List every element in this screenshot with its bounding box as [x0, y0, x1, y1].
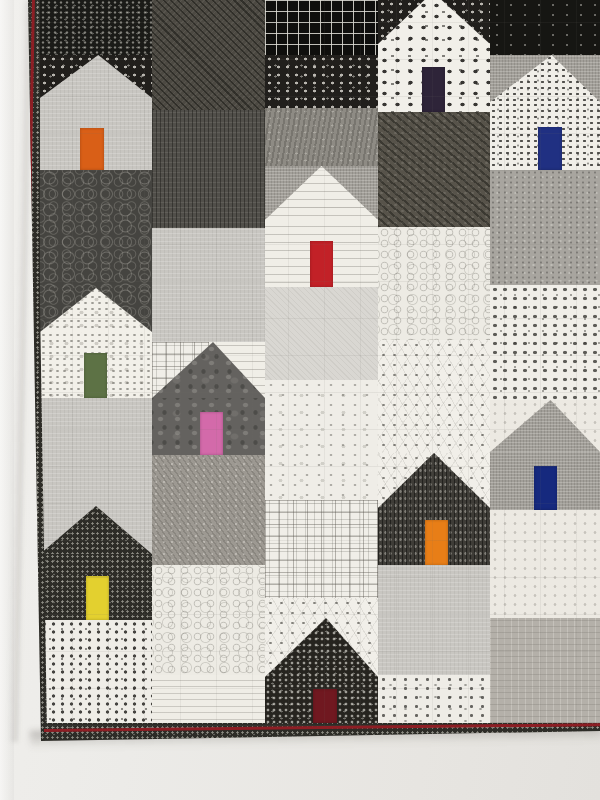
quilt	[0, 0, 600, 800]
fabric-patch-charcoal-diag2	[378, 112, 490, 227]
fabric-patch-black-grid	[265, 0, 378, 55]
quilt-photo	[0, 0, 600, 800]
house-door-green	[84, 353, 107, 398]
fabric-patch-black-dot	[265, 55, 378, 108]
fabric-patch-white-ledger	[152, 675, 265, 723]
house-door-red	[310, 241, 333, 287]
fabric-patch-white-floraldots	[490, 285, 600, 400]
house-door-orange	[425, 520, 448, 565]
house-door-maroon	[313, 689, 337, 723]
house-door-navy	[538, 127, 562, 170]
fabric-patch-gray-light	[378, 565, 490, 675]
fabric-patch-white-constellation	[378, 340, 490, 453]
fabric-patch-gray-medium	[490, 170, 600, 285]
fabric-patch-white-smalldots	[40, 620, 152, 723]
fabric-patch-black-solid	[490, 0, 600, 55]
quilt-patchwork	[0, 0, 600, 800]
fabric-patch-white-swirl	[152, 565, 265, 675]
fabric-patch-white-squares	[265, 500, 378, 598]
fabric-patch-gray-light	[152, 228, 265, 342]
fabric-patch-black-dash	[40, 0, 152, 55]
fabric-patch-white-swirl	[378, 227, 490, 340]
fabric-patch-gray-lighter	[265, 287, 378, 380]
house-door-navy	[534, 466, 557, 510]
house-door-pink	[200, 412, 223, 455]
fabric-patch-dark-vert	[152, 110, 265, 228]
house-door-orange	[80, 128, 104, 170]
fabric-patch-taupe-diag	[152, 455, 265, 565]
house-door-dark-purple	[422, 67, 445, 112]
fabric-patch-gray-cater	[265, 108, 378, 166]
fabric-patch-white-floral	[265, 380, 378, 500]
house-door-yellow	[86, 576, 109, 620]
fabric-patch-charcoal-diag	[152, 0, 265, 110]
fabric-patch-gray-light	[40, 398, 152, 506]
fabric-patch-white-floral2	[490, 510, 600, 618]
fabric-patch-white-smalldots2	[378, 675, 490, 723]
fabric-patch-taupe-text	[490, 618, 600, 723]
fabric-patch-dark-pebble	[40, 170, 152, 288]
